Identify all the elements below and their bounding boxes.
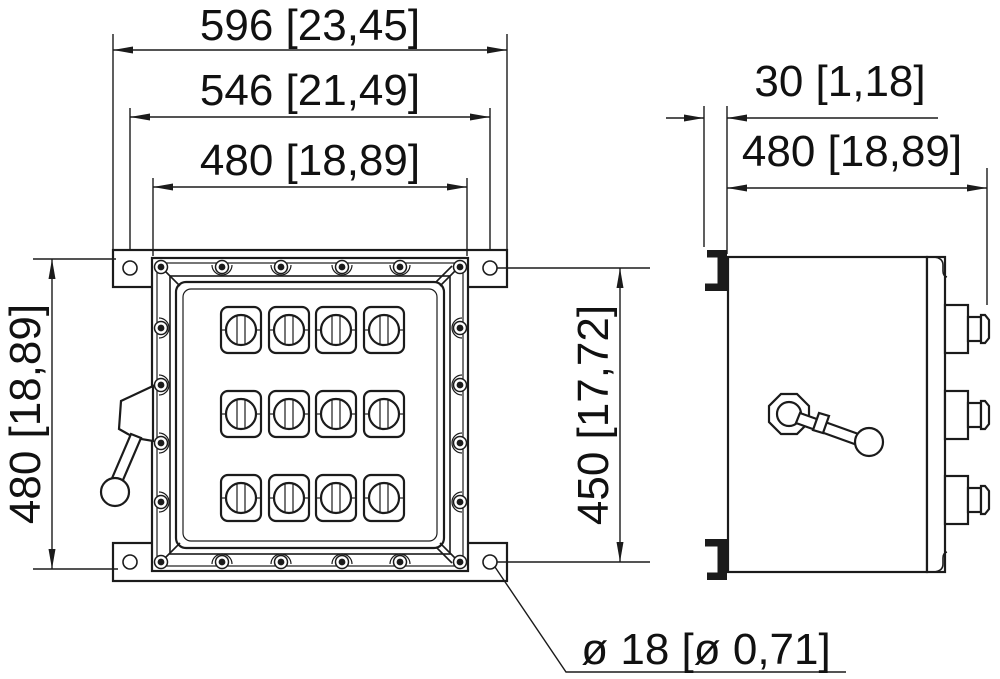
cover-flange-side <box>927 257 945 572</box>
cable-gland <box>945 391 989 439</box>
mounting-bracket-bottom <box>705 539 727 580</box>
front-view <box>101 250 507 581</box>
dim-text-hole-diameter: ø 18 [ø 0,71] <box>581 625 830 674</box>
cable-glands <box>945 305 989 524</box>
handle-ball <box>101 478 129 506</box>
dim-text-front-hole-spacing-v: 450 [17,72] <box>569 305 618 525</box>
mounting-bracket-top <box>705 250 727 291</box>
dim-hole-diameter: ø 18 [ø 0,71] <box>495 567 846 674</box>
dim-front-overall-width: 596 [23,45] <box>113 1 507 250</box>
dim-text-side-bracket-depth: 30 [1,18] <box>754 57 925 106</box>
mounting-hole-bottom-left <box>123 555 137 569</box>
technical-drawing-page: 596 [23,45] 546 [21,49] 480 [18,89] <box>0 0 1000 679</box>
dim-text-front-hole-spacing-h: 546 [21,49] <box>200 66 420 115</box>
dim-front-body-height: 480 [18,89] <box>1 259 118 569</box>
dim-front-hole-spacing-v: 450 [17,72] <box>497 268 650 562</box>
side-view <box>705 250 989 580</box>
dim-front-body-width: 480 [18,89] <box>153 136 467 256</box>
operator-handle-front <box>101 386 153 506</box>
dim-text-front-overall-width: 596 [23,45] <box>200 1 420 50</box>
enclosure-dimension-drawing: 596 [23,45] 546 [21,49] 480 [18,89] <box>0 0 1000 679</box>
mounting-hole-bottom-right <box>483 555 497 569</box>
dim-text-side-overall-depth: 480 [18,89] <box>742 127 962 176</box>
mounting-hole-top-right <box>483 261 497 275</box>
cable-gland <box>945 305 989 353</box>
handle-knob <box>855 428 883 456</box>
mounting-hole-top-left <box>123 261 137 275</box>
cable-gland <box>945 476 989 524</box>
dim-text-front-body-height: 480 [18,89] <box>1 304 50 524</box>
dim-text-front-body-width: 480 [18,89] <box>200 136 420 185</box>
handle-bracket <box>119 386 153 441</box>
